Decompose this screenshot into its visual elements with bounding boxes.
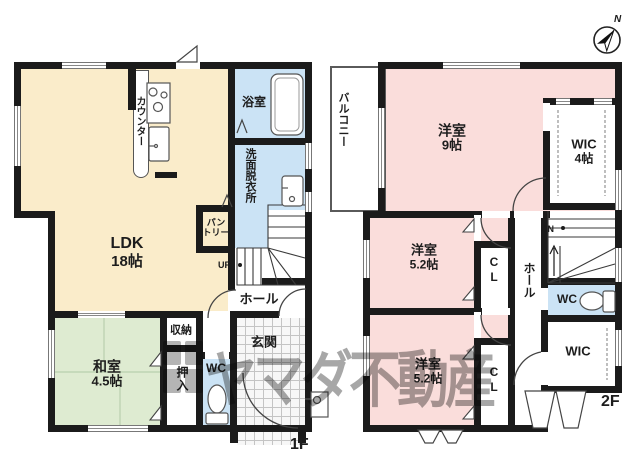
label-ldk: LDK 18帖: [111, 235, 144, 271]
window: [305, 192, 312, 212]
wall: [48, 311, 78, 318]
label-bedroom52a: 洋室 5.2帖: [410, 244, 439, 273]
window: [48, 330, 55, 378]
room-ldk: [21, 69, 228, 218]
compass-north-label: N: [614, 14, 622, 25]
window: [363, 240, 370, 278]
room-washroom-ext: [235, 210, 268, 248]
label-washitsu: 和室 4.5帖: [91, 358, 122, 389]
wall: [541, 386, 622, 393]
label-cl-a: CL: [487, 255, 501, 285]
wall: [541, 278, 622, 285]
door-opening: [543, 103, 550, 131]
wall: [155, 172, 177, 178]
window: [62, 62, 106, 69]
window: [14, 106, 21, 166]
ldk-size: 18帖: [111, 254, 144, 271]
ldk-name: LDK: [111, 235, 144, 252]
label-washroom: 洗面脱衣所: [242, 148, 258, 203]
door-opening: [482, 308, 510, 315]
wall: [230, 311, 279, 318]
up-marker-dot: [238, 263, 242, 267]
label-floor-1f: 1F: [290, 436, 309, 454]
label-balcony: バルコニー: [335, 92, 351, 147]
window: [615, 248, 622, 282]
bedroom9-name: 洋室: [438, 122, 466, 138]
washitsu-name: 和室: [93, 358, 121, 374]
watermark-text: ヤマダ不動産: [205, 330, 493, 419]
bedroom9-size: 9帖: [438, 139, 466, 154]
wall: [14, 62, 312, 69]
wall: [543, 203, 622, 210]
label-bath: 浴室: [242, 96, 266, 110]
wall: [541, 211, 548, 285]
wall: [196, 205, 235, 212]
door-opening: [541, 288, 548, 310]
door-opening: [514, 211, 543, 218]
label-wic4: WIC 4帖: [571, 138, 596, 167]
window: [443, 62, 520, 69]
wall: [363, 425, 548, 432]
wall: [228, 62, 235, 290]
label-storage: 収納: [170, 325, 192, 338]
window: [88, 425, 148, 432]
dn-marker-dot: [561, 226, 565, 230]
compass-icon: N: [594, 14, 622, 53]
window: [594, 98, 612, 105]
wall: [196, 246, 235, 253]
label-wc-2f: WC: [557, 293, 577, 307]
window: [615, 330, 622, 366]
stairs-direction-arrow: [550, 246, 558, 276]
door-opening: [474, 215, 481, 241]
window: [556, 98, 570, 105]
door-opening: [541, 352, 548, 385]
floor-plan: UP DN: [0, 0, 640, 469]
label-bedroom9: 洋室 9帖: [438, 122, 466, 153]
stairs-2f: [548, 211, 615, 283]
washitsu-size: 4.5帖: [91, 375, 122, 390]
label-floor-2f: 2F: [601, 393, 620, 411]
door-arc-wic2: [514, 352, 541, 385]
wall: [235, 138, 312, 145]
window: [615, 170, 622, 210]
wall: [262, 278, 312, 285]
porch-cap: [230, 425, 238, 443]
door-opening: [176, 62, 200, 69]
wall: [541, 315, 622, 322]
wic4-name: WIC: [571, 137, 596, 152]
door-opening: [228, 290, 235, 311]
back-door-swing: [177, 46, 197, 62]
label-hall-1f: ホール: [239, 293, 278, 308]
watermark-logo: [163, 341, 203, 393]
balcony-sliding-window: [378, 108, 385, 188]
sliding-door: [78, 313, 125, 316]
wic4-size: 4帖: [571, 153, 596, 167]
label-wic2: WIC: [565, 345, 590, 360]
window: [305, 143, 312, 169]
label-pantry: パン トリー: [202, 218, 229, 239]
label-counter: カウンター: [132, 96, 147, 146]
door-arc-hall-genkan: [279, 289, 306, 316]
label-hall-2f: ホール: [521, 262, 538, 298]
door-opening: [482, 211, 510, 218]
wall: [48, 211, 55, 432]
